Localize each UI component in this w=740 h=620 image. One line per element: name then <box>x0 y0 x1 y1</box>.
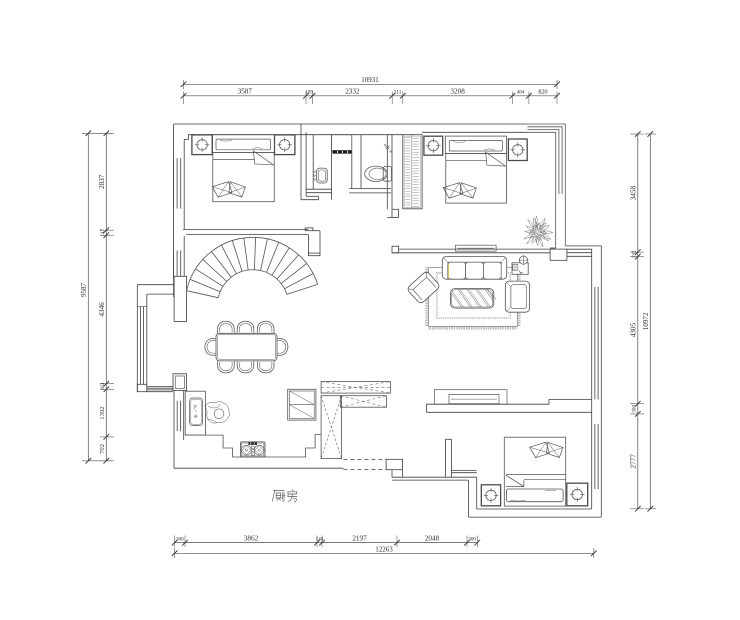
svg-text:4346: 4346 <box>98 302 106 317</box>
svg-text:300: 300 <box>176 536 184 542</box>
svg-text:9587: 9587 <box>80 283 88 298</box>
svg-text:10931: 10931 <box>361 76 379 84</box>
svg-text:2837: 2837 <box>98 174 106 189</box>
svg-text:132: 132 <box>631 250 637 258</box>
svg-text:163: 163 <box>100 382 106 390</box>
svg-text:300: 300 <box>631 405 637 413</box>
svg-text:2777: 2777 <box>629 454 637 469</box>
svg-text:3208: 3208 <box>450 88 465 96</box>
svg-text:3862: 3862 <box>244 534 259 542</box>
svg-text:3458: 3458 <box>629 186 637 201</box>
svg-text:3587: 3587 <box>238 88 253 96</box>
svg-text:1392: 1392 <box>99 407 106 420</box>
svg-text:10972: 10972 <box>642 312 650 330</box>
svg-text:2048: 2048 <box>425 534 440 542</box>
svg-text:702: 702 <box>99 444 106 454</box>
svg-text:300: 300 <box>468 536 476 542</box>
svg-text:2197: 2197 <box>352 534 367 542</box>
svg-text:311: 311 <box>394 90 402 96</box>
svg-text:144: 144 <box>316 536 324 542</box>
svg-text:147: 147 <box>100 228 106 236</box>
svg-text:12263: 12263 <box>375 545 393 553</box>
svg-text:2332: 2332 <box>345 88 360 96</box>
svg-text:4305: 4305 <box>629 323 637 338</box>
svg-text:189: 189 <box>305 90 313 96</box>
svg-text:484: 484 <box>517 90 525 96</box>
svg-text:820: 820 <box>538 89 547 96</box>
